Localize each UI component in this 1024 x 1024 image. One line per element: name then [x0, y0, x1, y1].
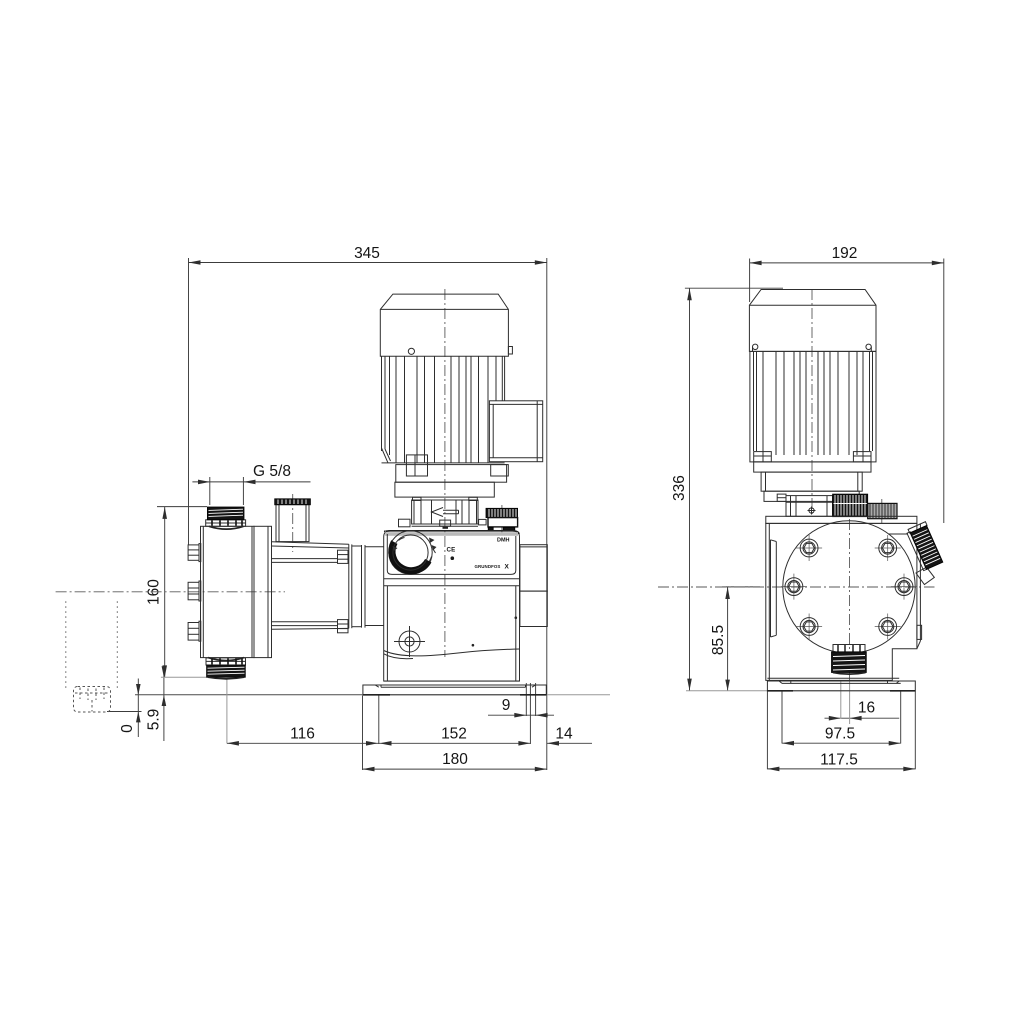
svg-text:GRUNDFOS: GRUNDFOS [475, 564, 501, 569]
svg-text:0: 0 [119, 724, 136, 733]
svg-text:97.5: 97.5 [825, 726, 855, 743]
svg-text:G 5/8: G 5/8 [253, 463, 291, 480]
svg-text:117.5: 117.5 [820, 752, 858, 769]
svg-text:116: 116 [290, 726, 315, 743]
svg-text:X: X [505, 564, 510, 571]
svg-text:16: 16 [858, 700, 875, 717]
svg-text:192: 192 [832, 245, 858, 262]
svg-text:9: 9 [502, 697, 511, 714]
svg-text:5.9: 5.9 [146, 709, 163, 731]
svg-text:180: 180 [442, 751, 468, 768]
svg-text:CE: CE [447, 546, 456, 553]
svg-text:14: 14 [555, 726, 573, 743]
svg-text:DMH: DMH [497, 538, 510, 544]
svg-text:85.5: 85.5 [710, 625, 727, 655]
svg-text:345: 345 [354, 245, 380, 262]
svg-text:152: 152 [441, 726, 467, 743]
svg-text:336: 336 [671, 475, 688, 501]
